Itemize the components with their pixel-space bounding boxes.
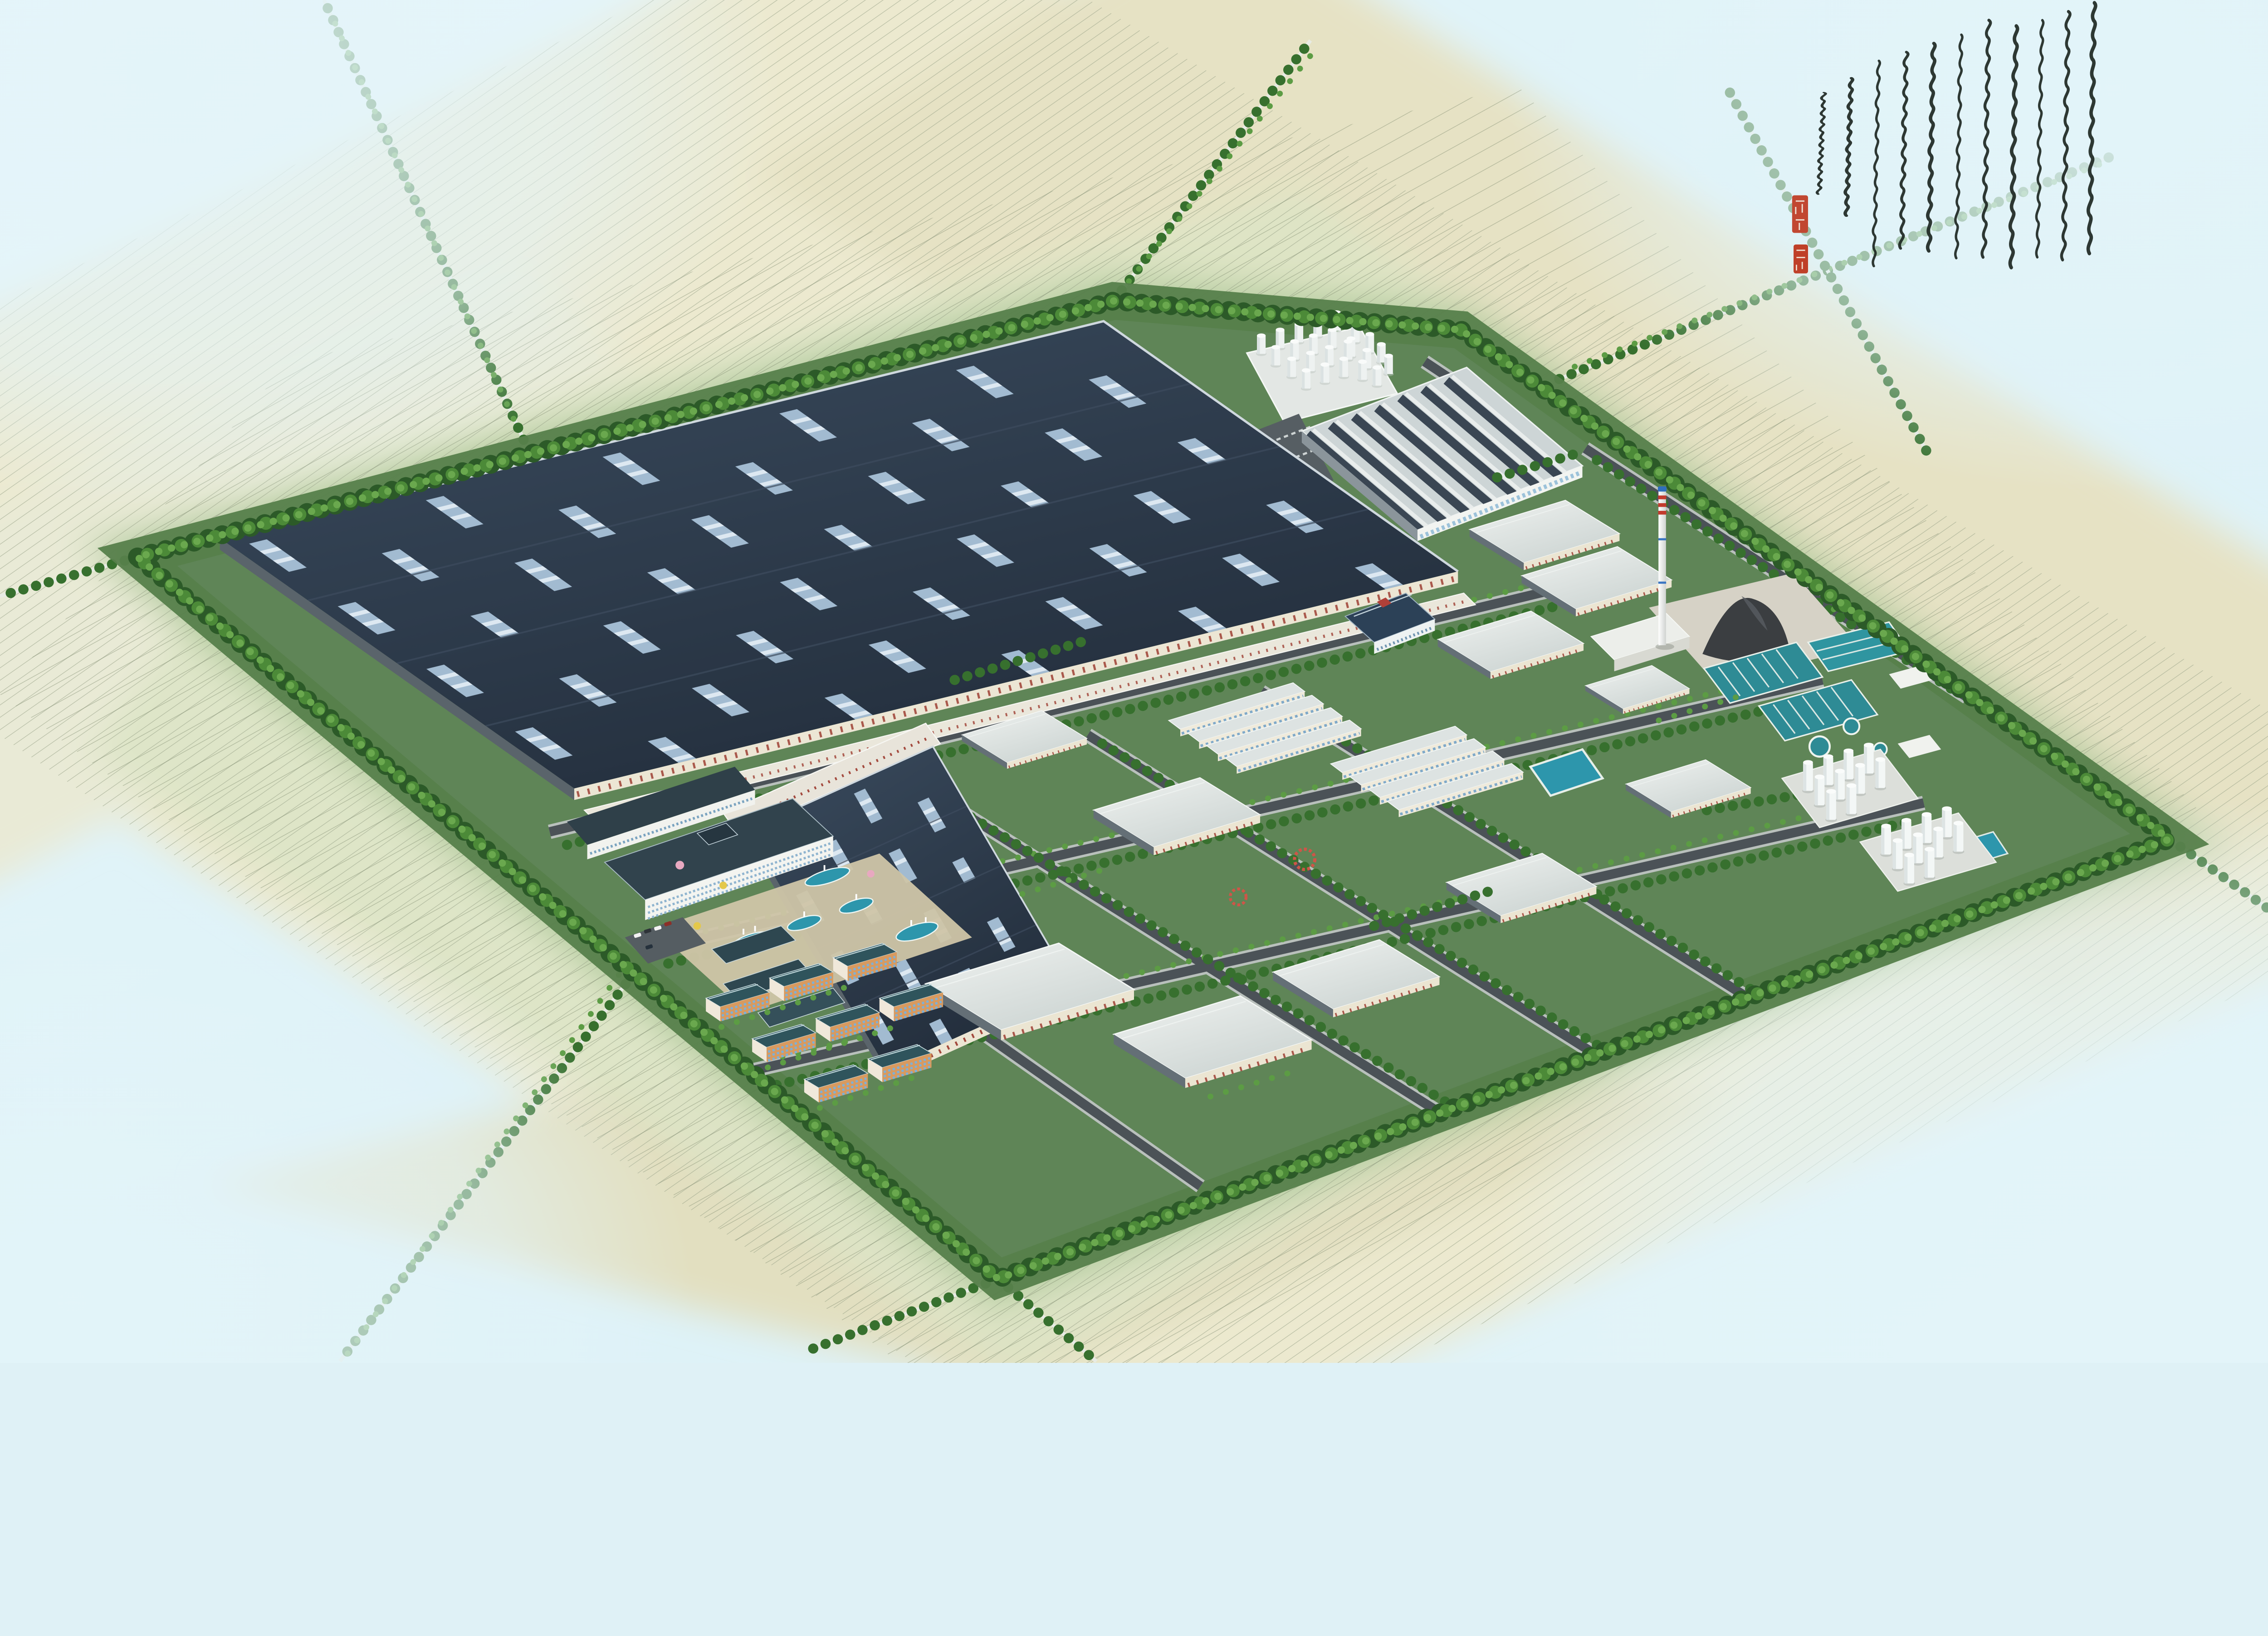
masterplan-rendering [0,0,2268,1363]
rendering-canvas [0,0,2268,1363]
seal-stamp [1794,245,1808,274]
clarifier [1843,718,1859,734]
clarifier [1809,736,1830,757]
seal-stamp [1792,195,1808,233]
